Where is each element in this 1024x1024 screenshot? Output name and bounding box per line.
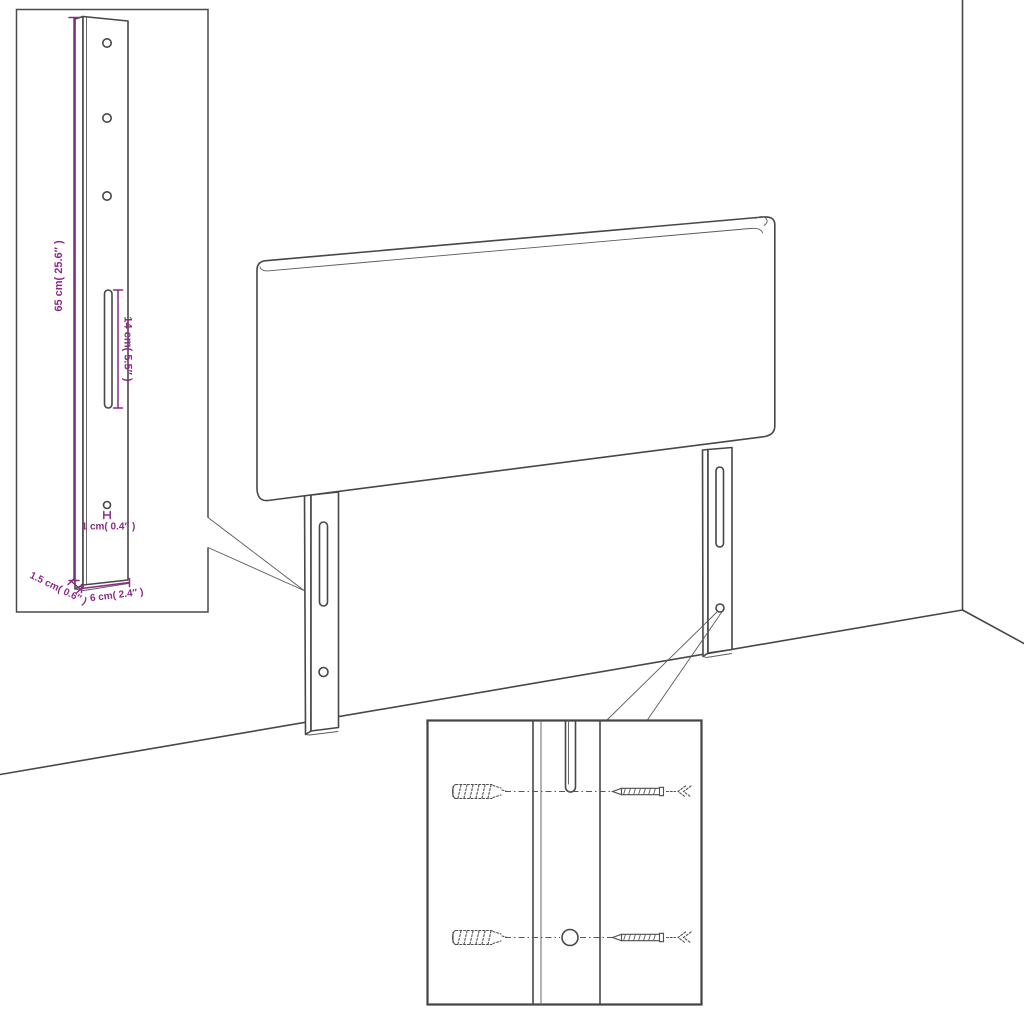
dim-slot-label: 14 cm( 5.5″ )	[122, 316, 134, 382]
diagram-canvas: 65 cm( 25.6″ ) 14 cm( 5.5″ ) 1 cm( 0.4″ …	[0, 0, 1024, 1024]
diagram-page: 65 cm( 25.6″ ) 14 cm( 5.5″ ) 1 cm( 0.4″ …	[0, 0, 1024, 1024]
dim-width-label: 6 cm( 2.4″ )	[89, 587, 144, 604]
headboard-panel	[257, 217, 775, 501]
callout-line-hole-left	[607, 612, 718, 721]
left-leg	[305, 492, 339, 735]
inset-box-border	[428, 721, 702, 1005]
inset-mounting-detail	[428, 612, 723, 1005]
floor-line-right	[963, 610, 1024, 644]
right-leg	[703, 448, 733, 658]
left-leg-front-face	[311, 492, 339, 731]
post-front-face	[83, 17, 128, 586]
post-side-face	[75, 17, 83, 590]
dim-hole-label: 1 cm( 0.4″ )	[82, 522, 136, 533]
callout-line-hole-right	[647, 612, 722, 721]
headboard-outline	[257, 217, 775, 501]
right-leg-front-face	[708, 448, 732, 654]
left-leg-side-face	[305, 495, 312, 735]
post-drawing	[75, 17, 129, 591]
dim-height-label: 65 cm( 25.6″ )	[53, 240, 65, 312]
